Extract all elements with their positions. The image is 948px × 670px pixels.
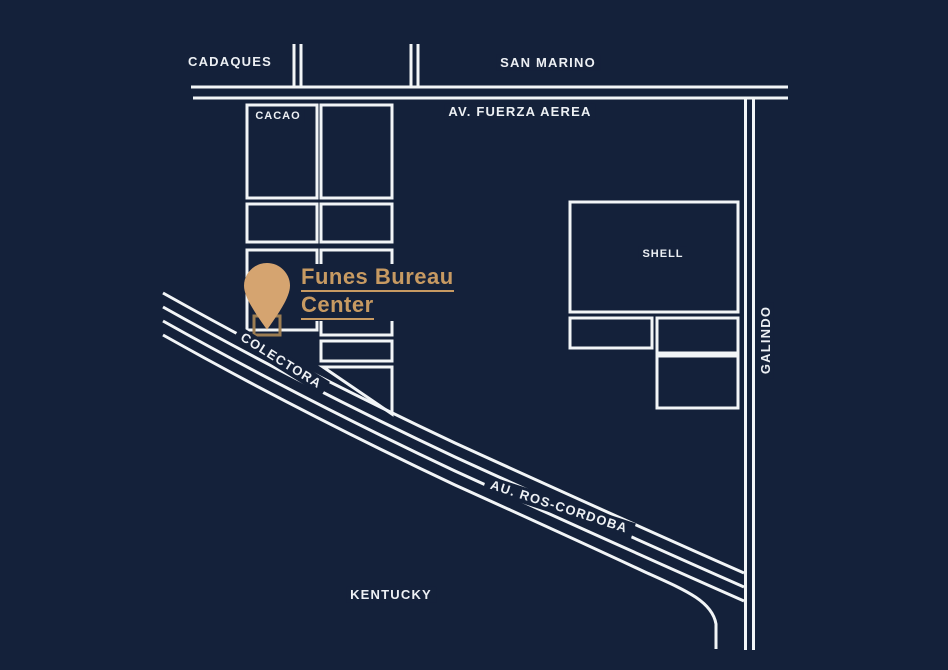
street-label-galindo: GALINDO xyxy=(758,302,774,378)
block xyxy=(247,204,317,242)
map-canvas xyxy=(0,0,948,670)
location-name-line1[interactable]: Funes Bureau xyxy=(301,266,454,292)
block xyxy=(321,204,392,242)
location-pin-icon[interactable] xyxy=(244,263,290,330)
cross-street-stubs xyxy=(294,44,418,86)
street-label-san-marino: SAN MARINO xyxy=(496,55,600,71)
block xyxy=(321,341,392,361)
location-name-link[interactable]: Funes Bureau Center xyxy=(297,264,458,321)
area-label-kentucky: KENTUCKY xyxy=(346,587,436,603)
location-name-line2[interactable]: Center xyxy=(301,294,374,320)
block xyxy=(657,318,738,353)
road-av-fuerza-aerea xyxy=(191,87,788,98)
block xyxy=(657,356,738,408)
block-label-shell: SHELL xyxy=(638,247,687,261)
map: CADAQUES SAN MARINO AV. FUERZA AEREA CAC… xyxy=(0,0,948,670)
street-label-cadaques: CADAQUES xyxy=(184,54,276,70)
block xyxy=(321,105,392,198)
street-label-av-fuerza-aerea: AV. FUERZA AEREA xyxy=(444,104,595,120)
block xyxy=(570,318,652,348)
road-galindo xyxy=(746,97,754,650)
block-label-cacao: CACAO xyxy=(251,109,304,123)
